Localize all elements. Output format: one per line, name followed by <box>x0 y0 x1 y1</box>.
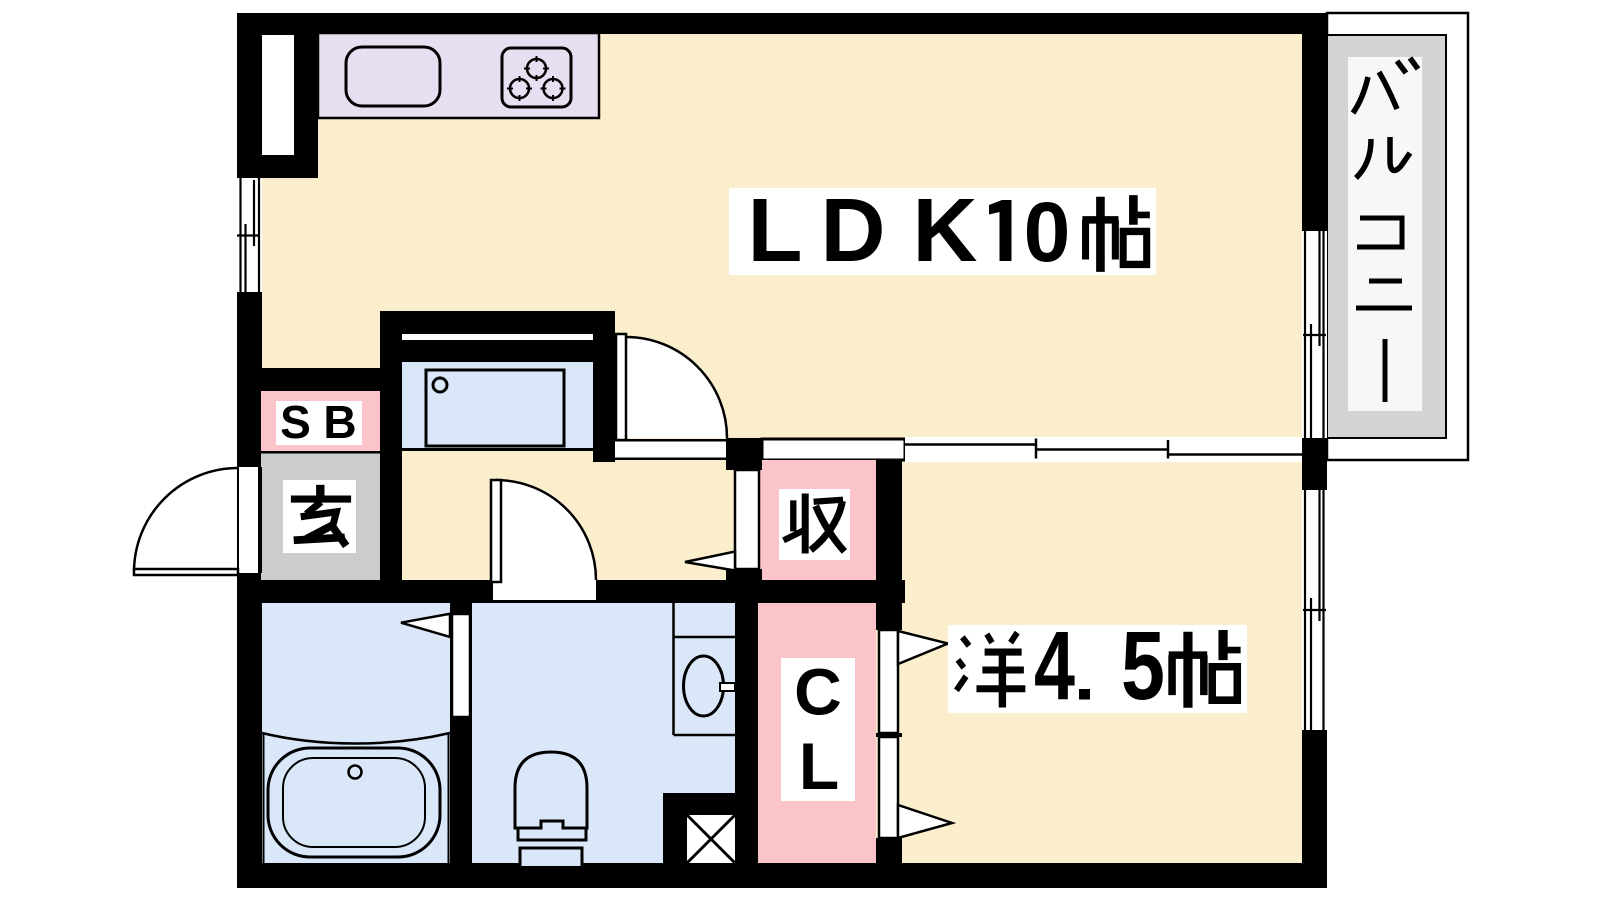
svg-text:B: B <box>323 396 356 448</box>
svg-text:L: L <box>748 181 803 281</box>
svg-text:D: D <box>821 181 886 281</box>
svg-text:K: K <box>913 181 978 281</box>
svg-text:C: C <box>794 655 842 729</box>
svg-text:S: S <box>280 396 311 448</box>
svg-text:5: 5 <box>1121 611 1165 720</box>
svg-text:4: 4 <box>1034 611 1075 720</box>
svg-text:L: L <box>799 729 839 803</box>
svg-text:0: 0 <box>1024 185 1071 279</box>
